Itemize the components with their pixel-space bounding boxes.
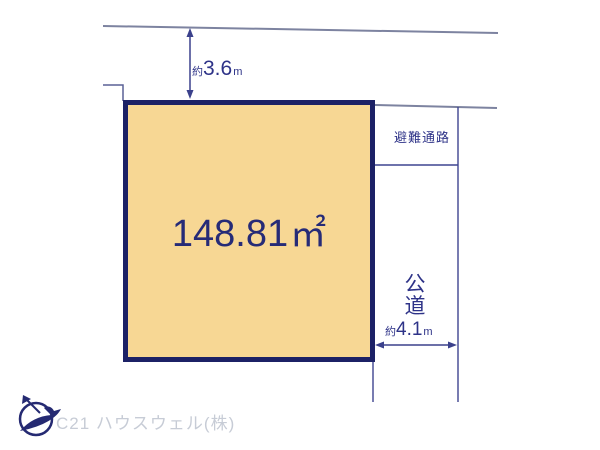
dimension-right-value: 4.1	[396, 319, 422, 341]
area-label: 148.81 ㎡	[172, 205, 326, 257]
logo-bird-shape	[20, 407, 61, 431]
area-value: 148.81	[172, 213, 288, 256]
company-logo-icon	[20, 395, 61, 435]
public-road-label: 公 道	[403, 274, 427, 318]
dimension-top-prefix: 約	[192, 63, 203, 79]
dimension-top-value: 3.6	[203, 57, 232, 81]
dimension-right-unit: m	[423, 326, 432, 338]
evacuation-passage-label: 避難通路	[394, 127, 450, 146]
dimension-top-label: 約 3.6 m	[192, 57, 242, 81]
land-plot-diagram: { "plot": { "area_value": "148.81", "are…	[0, 0, 600, 450]
road-edge-top-line	[103, 26, 498, 33]
area-unit: ㎡	[290, 205, 326, 257]
dimension-arrow-horizontal	[375, 342, 457, 349]
boundary-step-line	[103, 85, 123, 101]
land-plot: 148.81 ㎡	[123, 100, 375, 362]
evac-box-top-line	[375, 105, 497, 108]
public-road-char-2: 道	[405, 296, 426, 318]
public-road-char-1: 公	[405, 274, 426, 296]
company-watermark: C21 ハウスウェル(株)	[56, 409, 235, 434]
dimension-right-prefix: 約	[385, 323, 396, 339]
dimension-right-label: 約 4.1 m	[385, 319, 433, 341]
dimension-top-unit: m	[233, 66, 242, 78]
